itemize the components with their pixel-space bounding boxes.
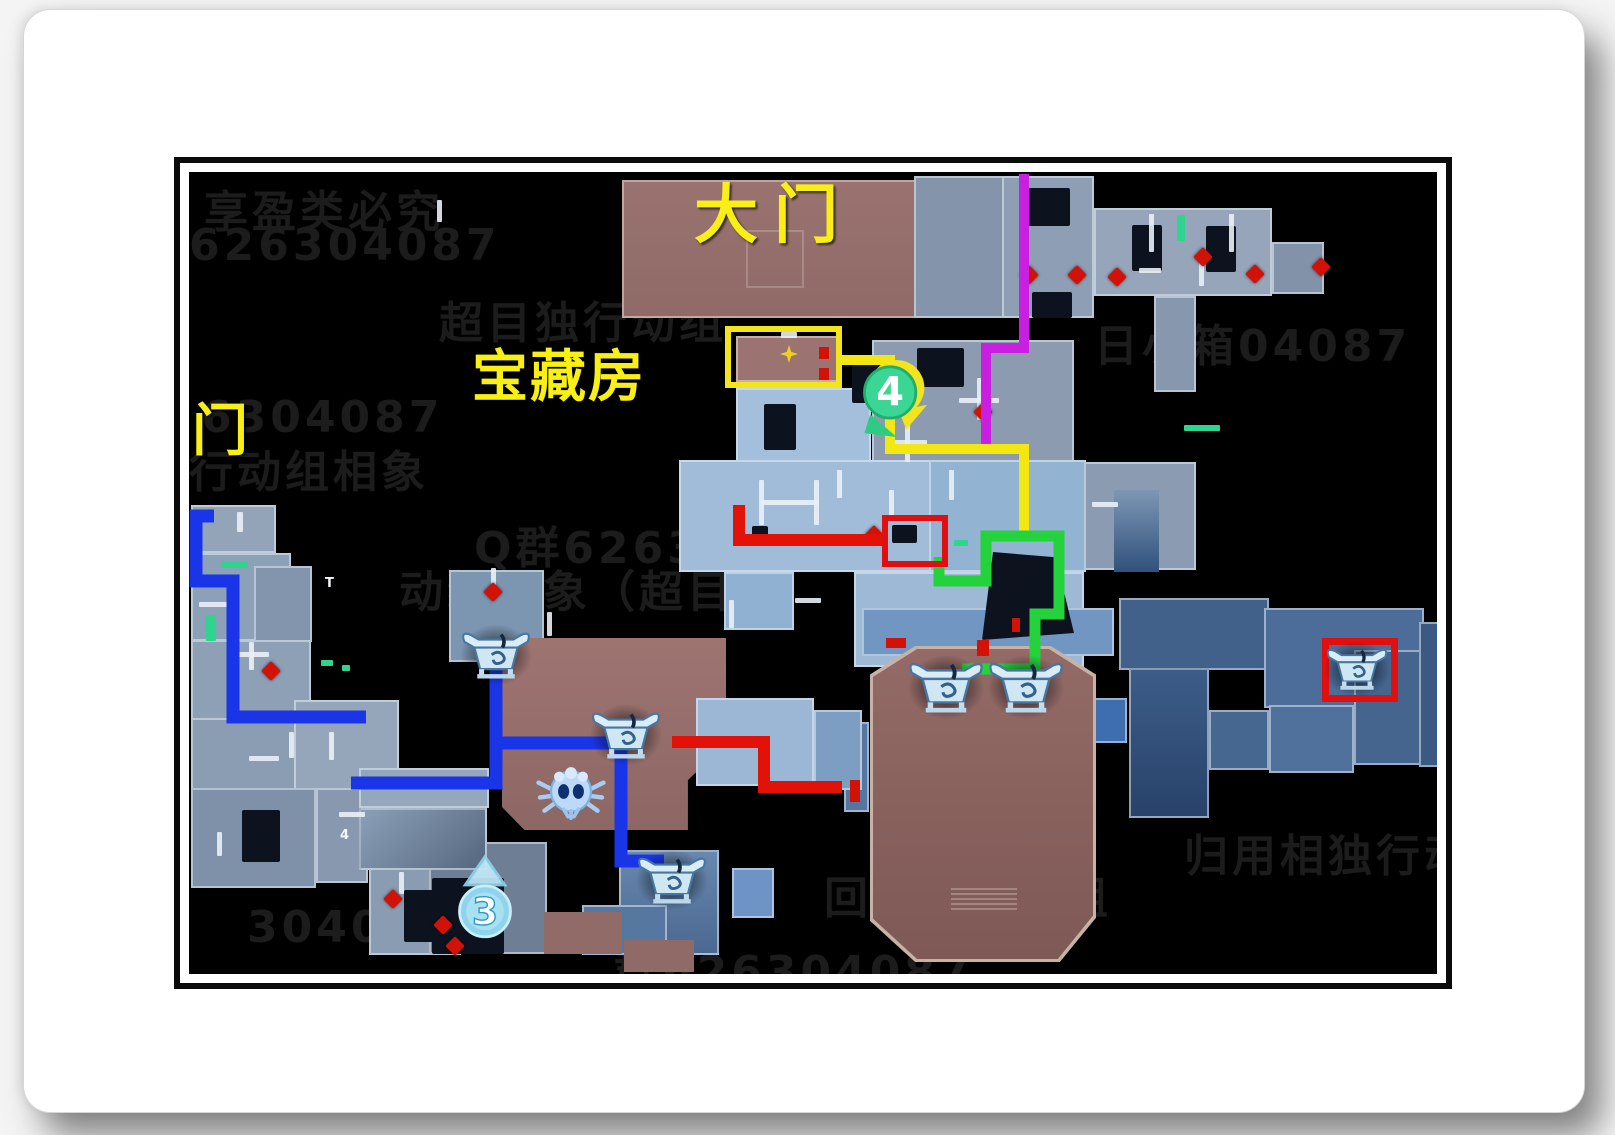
micro-label: T <box>325 576 334 591</box>
label-treasure-room: 宝藏房 <box>472 332 646 413</box>
micro-label: 4 <box>340 828 349 843</box>
page-card: 享盈类必究6263040876304087行动组相象Q群626304087动组棚… <box>24 10 1584 1112</box>
label-side-door: 侧门 <box>189 386 250 467</box>
map-frame: 享盈类必究6263040876304087行动组相象Q群626304087动组棚… <box>174 157 1452 989</box>
label-main-gate: 大门 <box>694 172 854 256</box>
game-map: 享盈类必究6263040876304087行动组相象Q群626304087动组棚… <box>189 172 1437 974</box>
labels-layer: 大门 宝藏房 侧门 T4 <box>189 172 1437 974</box>
